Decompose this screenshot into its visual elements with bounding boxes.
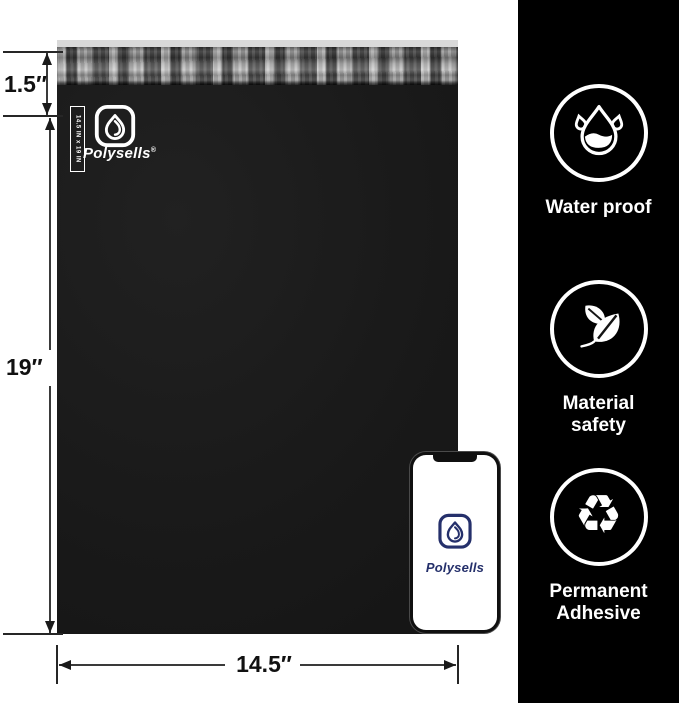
dimension-line [300,664,456,666]
feature-circle [550,280,648,378]
dimension-line [49,118,51,350]
feature-item-permanent-adhesive: ♻ Permanent Adhesive [518,468,679,625]
arrow-down-icon [45,621,55,633]
feature-item-material-safety: Material safety [518,280,679,437]
dimension-tick [3,633,63,635]
bag-back-panel-strip [57,40,458,47]
feature-item-waterproof: Water proof [518,84,679,219]
bag-brand-name: Polysells [83,145,151,162]
leaf-icon [568,296,630,363]
bag-size-strip-label: 14.5 IN x 19 IN [70,106,85,172]
feature-label: Material safety [535,393,663,437]
height-dimension-label: 19″ [6,354,43,381]
mailer-bag: 14.5 IN x 19 IN Polysells® [57,40,458,634]
dimension-line [49,386,51,633]
arrow-right-icon [444,660,456,670]
bag-brand-text: Polysells® [83,145,156,162]
phone-screen: Polysells [413,455,497,630]
arrow-left-icon [59,660,71,670]
arrow-up-icon [45,118,55,130]
feature-circle: ♻ [550,468,648,566]
arrow-down-icon [42,103,52,115]
arrow-up-icon [42,53,52,65]
feature-label: Water proof [546,197,652,219]
dimension-tick [3,51,63,53]
dimension-tick [3,115,63,117]
water-drop-icon [569,101,629,166]
feature-sidebar: Water proof Material safety ♻ [518,0,679,703]
recycle-icon: ♻ [574,488,622,542]
product-infographic: 14.5 IN x 19 IN Polysells® Polysells [0,0,679,703]
dimension-tick [56,645,58,684]
flap-dimension-label: 1.5″ [4,71,47,98]
phone-notch [433,455,477,462]
phone-brand-label: Polysells [426,560,484,575]
phone-polysells-logo-icon [437,513,473,556]
dimension-tick [457,645,459,684]
dimension-line [59,664,225,666]
phone-mockup: Polysells [410,452,500,633]
width-dimension-label: 14.5″ [225,651,303,678]
registered-trademark: ® [151,147,156,154]
feature-circle [550,84,648,182]
feature-label: Permanent Adhesive [535,581,663,625]
bag-adhesive-strip [57,47,458,85]
